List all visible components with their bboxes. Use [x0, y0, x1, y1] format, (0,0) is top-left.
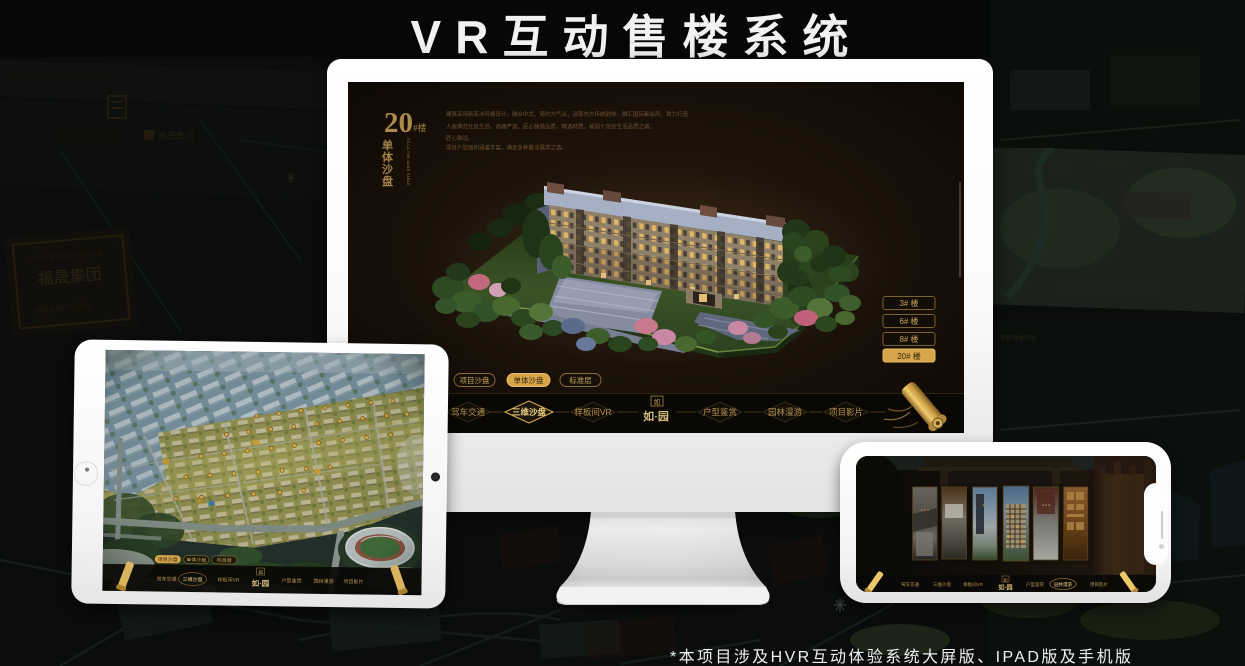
svg-text:标准层: 标准层	[569, 375, 592, 385]
svg-text:匠心致远。: 匠心致远。	[446, 134, 474, 142]
svg-text:驾车交通: 驾车交通	[901, 581, 919, 588]
svg-text:户型鉴赏: 户型鉴赏	[281, 577, 301, 584]
svg-text:6# 楼: 6# 楼	[899, 316, 918, 326]
svg-text:8# 楼: 8# 楼	[899, 334, 918, 344]
svg-text:如·园: 如·园	[643, 409, 669, 423]
svg-text:兰州市城关区雁滩高新技术开发区: 兰州市城关区雁滩高新技术开发区	[8, 71, 113, 80]
svg-text:人居典范社区生活，高端严选，匠心铸造品质，精选材质，格调十足: 人居典范社区生活，高端严选，匠心铸造品质，精选材质，格调十足的生活品质之城。	[446, 123, 655, 131]
svg-text:三维沙盘: 三维沙盘	[512, 407, 547, 417]
svg-text:项目整体鸟瞰: 项目整体鸟瞰	[1000, 334, 1036, 342]
svg-text:样板间VR: 样板间VR	[217, 576, 239, 583]
svg-text:#楼: #楼	[413, 122, 427, 133]
svg-text:样板间VR: 样板间VR	[574, 407, 611, 417]
svg-text:园林漫游: 园林漫游	[1054, 581, 1072, 588]
svg-text:VILLA THE SAND TABLE: VILLA THE SAND TABLE	[406, 138, 410, 186]
svg-text:单: 单	[382, 138, 393, 152]
svg-text:户型鉴赏: 户型鉴赏	[703, 407, 737, 417]
svg-text:建筑采用新亚洲风格设计，融合中式，简约大气派，汲取东方传统韵: 建筑采用新亚洲风格设计，融合中式，简约大气派，汲取东方传统韵味，融汇国际都会风，…	[446, 110, 689, 118]
svg-text:如: 如	[654, 397, 661, 406]
svg-text:如·园: 如·园	[998, 584, 1012, 592]
svg-text:项目沙盘: 项目沙盘	[460, 375, 490, 385]
svg-text:雁滩家具市场西区: 雁滩家具市场西区	[60, 133, 116, 142]
svg-text:项目影片: 项目影片	[829, 407, 863, 417]
svg-text:如: 如	[258, 569, 263, 576]
svg-text:户型鉴赏: 户型鉴赏	[1026, 581, 1044, 588]
svg-text:项目影片: 项目影片	[343, 578, 363, 585]
svg-text:项目沙盘: 项目沙盘	[158, 556, 178, 563]
svg-text:三维沙盘: 三维沙盘	[933, 581, 951, 588]
svg-text:20: 20	[384, 107, 413, 139]
svg-text:盘: 盘	[382, 174, 393, 188]
svg-text:园林漫游: 园林漫游	[313, 578, 333, 585]
svg-text:三维沙盘: 三维沙盘	[182, 576, 202, 583]
svg-text:20# 楼: 20# 楼	[897, 351, 921, 361]
svg-text:金奖荣誉: 金奖荣誉	[1100, 160, 1124, 168]
svg-text:驾车交通: 驾车交通	[156, 576, 176, 583]
svg-text:标准层: 标准层	[217, 557, 232, 564]
svg-text:沙: 沙	[382, 163, 393, 176]
svg-text:3# 楼: 3# 楼	[899, 298, 918, 308]
svg-text:样板间VR: 样板间VR	[963, 581, 984, 588]
svg-text:如: 如	[1003, 576, 1007, 583]
svg-text:园林漫游: 园林漫游	[768, 407, 803, 417]
svg-text:富力湾别墅区: 富力湾别墅区	[1030, 164, 1066, 172]
svg-text:体: 体	[382, 150, 394, 164]
svg-text:驾车交通: 驾车交通	[451, 407, 486, 417]
svg-text:单体沙盘: 单体沙盘	[514, 375, 544, 385]
svg-text:单体沙盘: 单体沙盘	[186, 556, 206, 563]
svg-text:福晟集团: 福晟集团	[158, 130, 194, 141]
svg-text:项目影片: 项目影片	[1090, 581, 1108, 588]
svg-text:项目户型面积涵盖丰富，满足多种置业需求之选。: 项目户型面积涵盖丰富，满足多种置业需求之选。	[446, 144, 567, 152]
svg-text:如·园: 如·园	[252, 578, 270, 588]
